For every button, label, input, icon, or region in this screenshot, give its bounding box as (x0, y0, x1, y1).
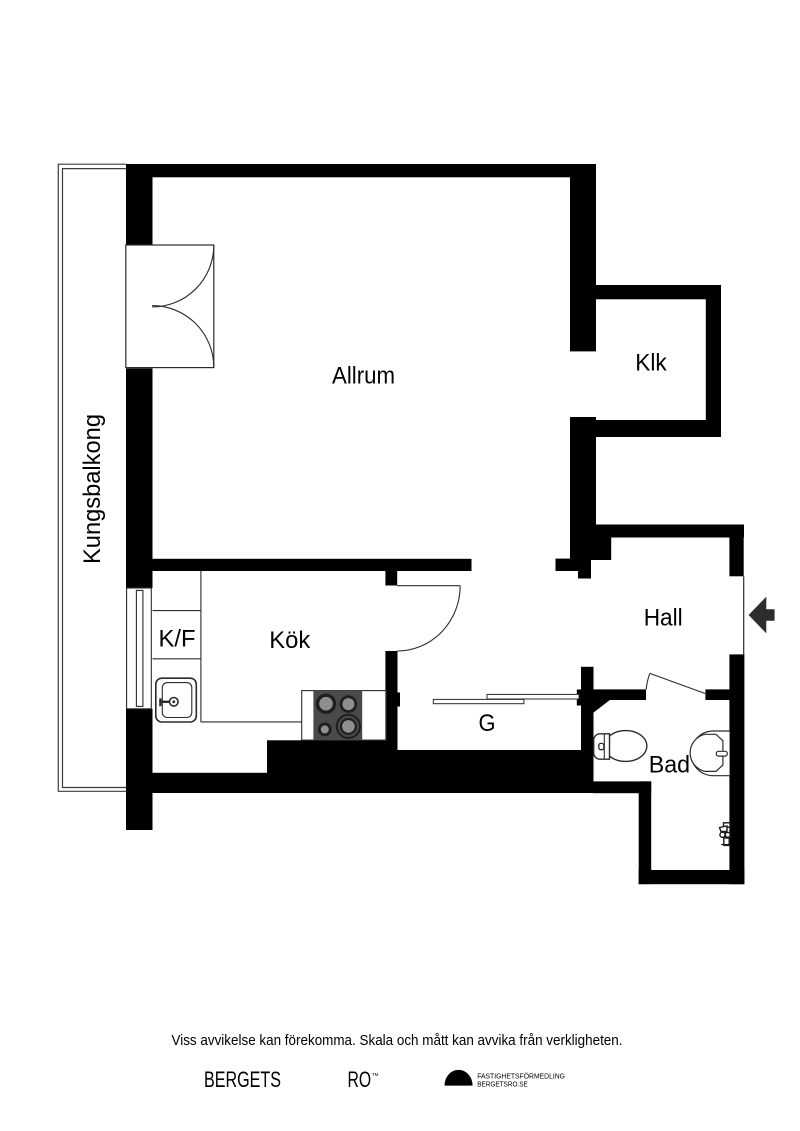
svg-text:Klk: Klk (635, 349, 667, 376)
svg-text:TM: TM (372, 1072, 379, 1077)
svg-text:Kök: Kök (269, 627, 311, 654)
svg-text:Allrum: Allrum (332, 363, 395, 390)
svg-text:Viss avvikelse kan förekomma.: Viss avvikelse kan förekomma. Skala och … (172, 1033, 623, 1049)
svg-text:K/F: K/F (159, 626, 196, 653)
svg-text:BERGETSRO.SE: BERGETSRO.SE (477, 1080, 528, 1089)
svg-text:BERGETS: BERGETS (204, 1067, 281, 1092)
svg-text:Hall: Hall (644, 605, 683, 632)
svg-text:Kungsbalkong: Kungsbalkong (79, 414, 106, 564)
svg-text:RO: RO (348, 1067, 372, 1092)
svg-text:Bad: Bad (649, 752, 690, 779)
svg-text:G: G (479, 710, 496, 737)
